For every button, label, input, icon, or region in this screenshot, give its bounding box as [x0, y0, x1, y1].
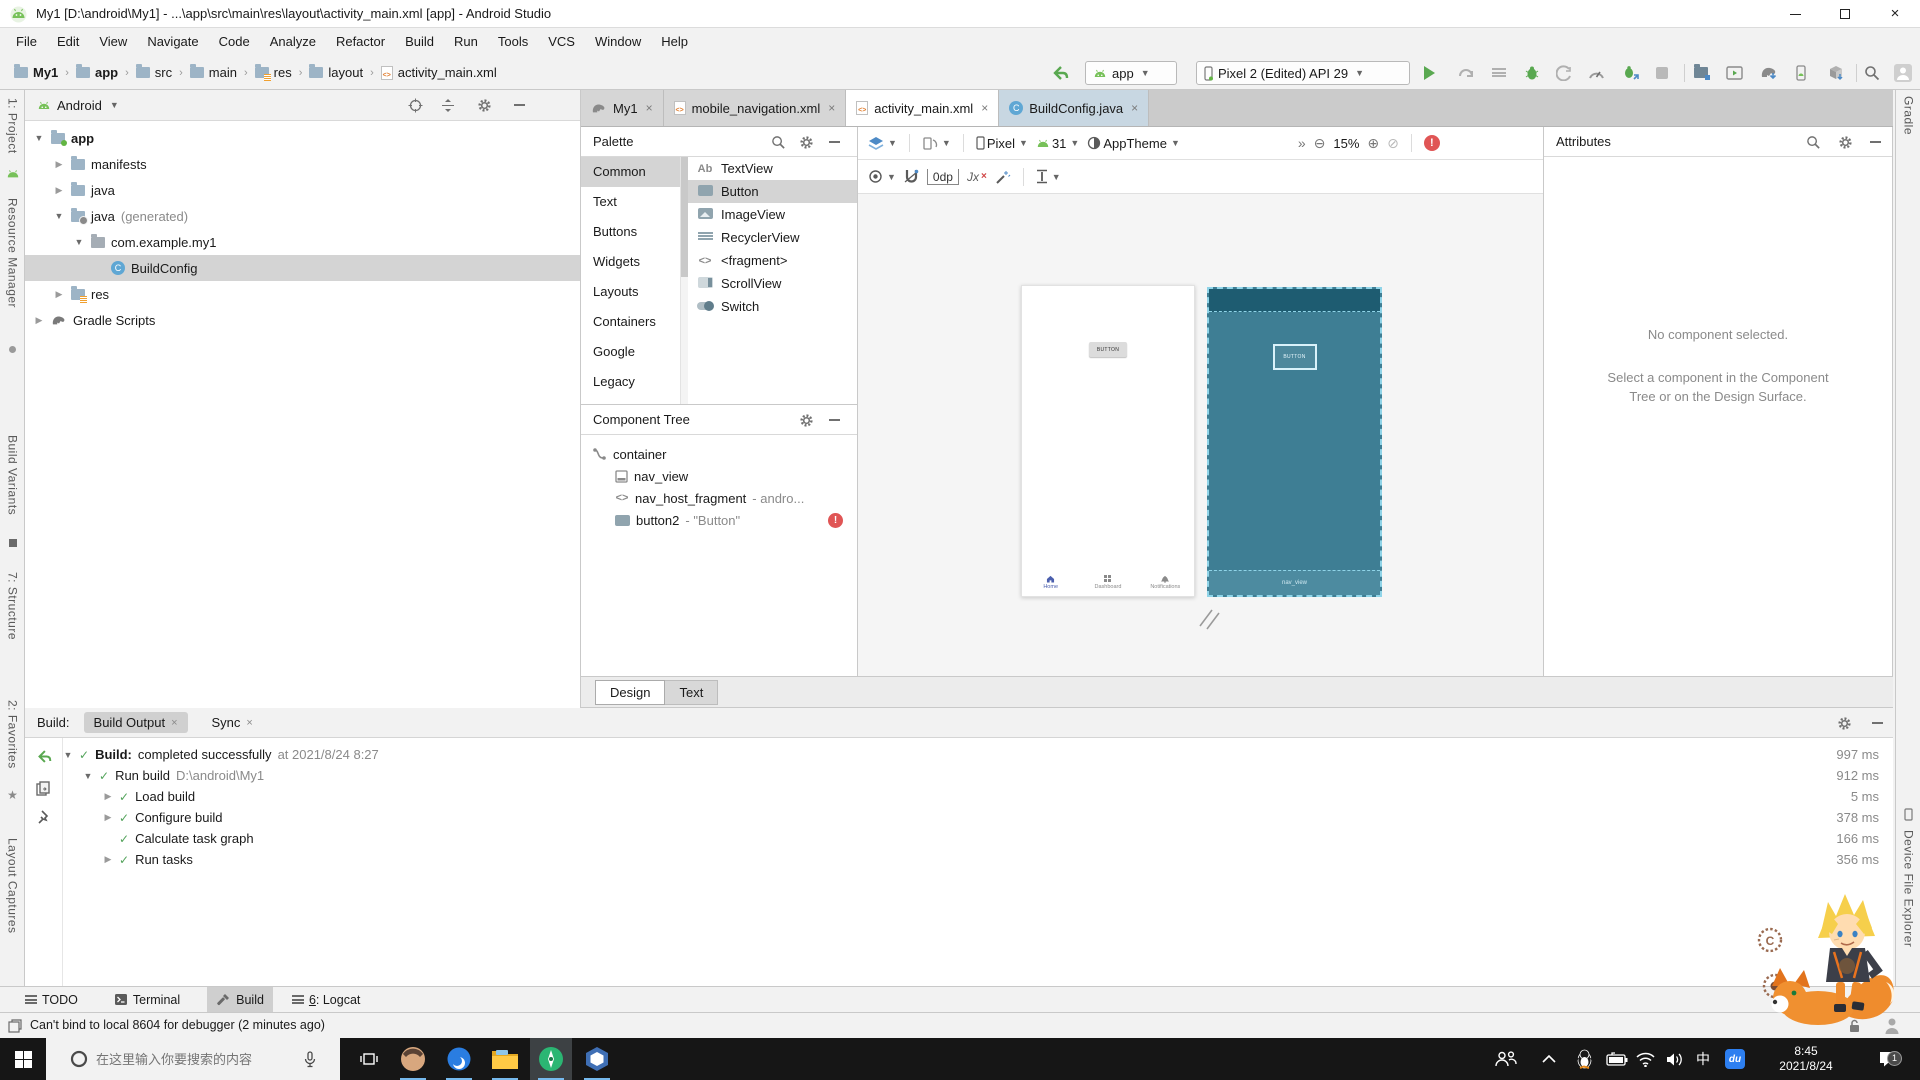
build-panel: Build: Build Output× Sync× ▼✓ Build:comp…	[25, 708, 1893, 986]
tool-icon[interactable]	[0, 538, 25, 548]
palette-category-common[interactable]: Common	[581, 157, 680, 187]
tab-sync[interactable]: Sync×	[202, 712, 263, 733]
switch-icon	[696, 301, 714, 313]
folder-icon	[76, 67, 90, 78]
palette-item-scrollview[interactable]: ScrollView	[688, 272, 857, 295]
theme-select[interactable]: AppTheme▼	[1087, 136, 1180, 151]
clock-date: 2021/8/24	[1779, 1059, 1832, 1074]
clock-time: 8:45	[1779, 1044, 1832, 1059]
tree-row-manifests[interactable]: ▶manifests	[25, 151, 580, 177]
bell-icon	[1161, 574, 1169, 583]
toolwin-todo[interactable]: TODO	[16, 987, 87, 1013]
blueprint-preview[interactable]: BUTTON nav_view	[1207, 287, 1382, 597]
design-canvas[interactable]: BUTTON Home Dashboard Notifications BUTT…	[858, 194, 1543, 676]
design-mode-select[interactable]: ▼	[868, 136, 897, 151]
export-icon[interactable]	[25, 765, 62, 796]
tab-design[interactable]: Design	[595, 680, 665, 705]
folder-icon	[309, 67, 323, 78]
tray-ime-indicator[interactable]: 中	[1690, 1038, 1716, 1080]
build-duration: 166 ms	[1836, 831, 1879, 846]
menu-view[interactable]: View	[89, 28, 137, 56]
phone-icon[interactable]	[1896, 808, 1920, 821]
res-folder-icon	[255, 67, 269, 78]
component-tree-header: Component Tree	[581, 405, 857, 435]
default-margin-field[interactable]: 0dp	[927, 169, 959, 185]
breadcrumb-project[interactable]: My1	[14, 65, 58, 80]
package-icon	[91, 237, 105, 248]
chevron-up-icon	[1542, 1055, 1556, 1063]
home-icon	[1046, 575, 1055, 583]
hexagon-app-icon	[585, 1046, 609, 1072]
success-check-icon: ✓	[119, 832, 129, 846]
task-view-button[interactable]	[348, 1038, 390, 1080]
project-panel: Android ▼ ▼app ▶manifests ▶java ▼java (g…	[25, 90, 581, 708]
theme-icon	[1087, 136, 1101, 150]
menu-run[interactable]: Run	[444, 28, 488, 56]
folder-icon	[71, 159, 85, 170]
tree-row-gradle-scripts[interactable]: ▶ Gradle Scripts	[25, 307, 580, 333]
window-layers-icon[interactable]	[8, 1019, 22, 1033]
tool-strip-layout-captures[interactable]: Layout Captures	[0, 838, 25, 934]
search-everywhere-icon[interactable]	[1864, 60, 1880, 85]
taskbar-search-box[interactable]	[46, 1038, 340, 1080]
zoom-fit-icon[interactable]: ⊘	[1387, 135, 1399, 152]
taskbar-app-avatar[interactable]	[392, 1038, 434, 1080]
palette-item-recyclerview[interactable]: RecyclerView	[688, 226, 857, 249]
tree-row-res[interactable]: ▶res	[25, 281, 580, 307]
gear-icon[interactable]	[799, 135, 814, 150]
generated-folder-icon	[71, 211, 85, 222]
hide-panel-icon[interactable]	[829, 141, 840, 143]
toolbar-overflow[interactable]: »	[1298, 135, 1306, 151]
toolwin-build[interactable]: Build	[207, 987, 273, 1013]
profiler-gauge-icon[interactable]	[1588, 60, 1605, 85]
success-check-icon: ✓	[119, 790, 129, 804]
build-duration: 912 ms	[1836, 768, 1879, 783]
gradle-sync-icon[interactable]	[1760, 60, 1778, 85]
rotate-device-icon	[922, 136, 938, 151]
people-icon	[1495, 1051, 1517, 1067]
error-badge[interactable]: !	[828, 513, 843, 528]
palette-category-containers[interactable]: Containers	[581, 307, 680, 337]
tool-strip-favorites[interactable]: 2: Favorites	[0, 700, 25, 769]
layout-file-icon	[674, 101, 686, 115]
close-icon[interactable]: ×	[646, 101, 653, 115]
back-arrow-icon[interactable]	[1050, 60, 1070, 85]
design-toolbar-row2: ▼ 0dp Jx× ▼	[858, 160, 1543, 194]
res-folder-icon	[71, 289, 85, 300]
tree-row-buildconfig[interactable]: CBuildConfig	[25, 255, 580, 281]
android-studio-icon	[538, 1046, 564, 1072]
tool-strip-project[interactable]: 1: Project	[0, 98, 25, 154]
sdk-manager-icon[interactable]	[1828, 60, 1844, 85]
api-level-select[interactable]: 31▼	[1036, 136, 1079, 151]
gear-icon[interactable]	[799, 413, 814, 428]
chevron-down-icon: ▼	[1052, 172, 1061, 182]
phone-icon	[976, 136, 985, 150]
errors-badge[interactable]: !	[1424, 135, 1440, 151]
show-hidden-icons-button[interactable]	[1534, 1038, 1564, 1080]
layout-file-icon	[381, 66, 393, 80]
build-panel-label: Build:	[37, 715, 70, 730]
folder-icon	[14, 67, 28, 78]
todo-list-icon	[25, 994, 37, 1006]
windows-taskbar: 中 du 8:452021/8/24 1	[0, 1038, 1920, 1080]
clear-constraints-icon[interactable]: Jx×	[967, 170, 987, 184]
menu-edit[interactable]: Edit	[47, 28, 89, 56]
button-icon	[696, 185, 714, 199]
attributes-empty-state: No component selected. Select a componen…	[1544, 327, 1892, 406]
bottom-nav-icon	[615, 470, 628, 483]
component-row-nav-host-fragment[interactable]: <> nav_host_fragment- andro...	[581, 487, 857, 509]
notification-badge: 1	[1887, 1051, 1902, 1066]
search-input[interactable]	[96, 1052, 296, 1067]
gradle-elephant-icon	[51, 314, 67, 327]
hide-panel-icon[interactable]	[1870, 141, 1881, 143]
tool-window-bar: TODO Terminal Build 6: Logcat	[0, 986, 1920, 1012]
tool-strip-resource-manager[interactable]: Resource Manager	[0, 198, 25, 308]
palette-item-imageview[interactable]: ImageView	[688, 203, 857, 226]
success-check-icon: ✓	[99, 769, 109, 783]
layout-file-icon	[856, 101, 868, 115]
editor-mode-strip: Design Text	[581, 676, 1893, 708]
chevron-down-icon: ▼	[1171, 138, 1180, 148]
breadcrumb-file[interactable]: activity_main.xml	[381, 65, 497, 80]
microphone-icon[interactable]	[304, 1051, 316, 1068]
palette-category-layouts[interactable]: Layouts	[581, 277, 680, 307]
constraint-layout-icon	[593, 448, 607, 460]
pin-icon[interactable]	[25, 796, 62, 824]
dashboard-icon	[1104, 575, 1112, 583]
tab-build-output[interactable]: Build Output×	[84, 712, 188, 733]
editor-tab-my1[interactable]: My1×	[581, 90, 664, 126]
gear-icon[interactable]	[1837, 716, 1852, 731]
close-button[interactable]: ×	[1870, 0, 1920, 28]
device-manager-icon[interactable]	[1694, 60, 1708, 85]
close-icon[interactable]: ×	[828, 101, 835, 115]
build-row-load-build[interactable]: ▶✓ Load build 5 ms	[63, 786, 1893, 807]
ide-status-bar: Can't bind to local 8604 for debugger (2…	[0, 1012, 1920, 1038]
apply-changes-icon[interactable]	[1456, 60, 1474, 85]
design-toolbar-row1: ▼ ▼ Pixel▼ 31▼ AppTheme▼ » ⊖ 15% ⊕ ⊘ !	[858, 127, 1543, 160]
folder-icon	[71, 185, 85, 196]
nav-dashboard[interactable]: Dashboard	[1079, 568, 1136, 596]
toolwin-terminal[interactable]: Terminal	[105, 987, 189, 1013]
hide-panel-icon[interactable]	[514, 104, 525, 106]
avd-manager-icon[interactable]	[1796, 60, 1806, 85]
build-panel-header: Build: Build Output× Sync×	[25, 708, 1893, 738]
android-studio-logo-icon	[10, 6, 27, 23]
breadcrumb-src[interactable]: src	[136, 65, 172, 80]
zoom-in-icon[interactable]: ⊕	[1367, 135, 1379, 152]
empty-state-title: No component selected.	[1544, 327, 1892, 342]
palette-item-button[interactable]: Button	[688, 180, 857, 203]
editor-tab-mobile-navigation[interactable]: mobile_navigation.xml×	[664, 90, 847, 126]
pack-align-select[interactable]: ▼	[1036, 169, 1061, 184]
windows-logo-icon	[15, 1051, 32, 1068]
tab-text[interactable]: Text	[665, 680, 718, 705]
success-check-icon: ✓	[79, 748, 89, 762]
empty-state-hint: Select a component in the Component Tree…	[1602, 368, 1834, 406]
folder-icon	[136, 67, 150, 78]
imageview-icon	[696, 208, 714, 222]
hide-panel-icon[interactable]	[829, 419, 840, 421]
textview-icon: Ab	[696, 163, 714, 175]
attributes-panel: Attributes No component selected. Select…	[1543, 127, 1893, 676]
chevron-down-icon: ▼	[1141, 68, 1150, 78]
apply-code-changes-icon[interactable]	[1492, 60, 1506, 85]
device-type-select[interactable]: Pixel▼	[976, 136, 1028, 151]
component-row-nav-view[interactable]: nav_view	[581, 465, 857, 487]
build-row-run-tasks[interactable]: ▶✓ Run tasks 356 ms	[63, 849, 1893, 870]
design-surface-panel: ▼ ▼ Pixel▼ 31▼ AppTheme▼ » ⊖ 15% ⊕ ⊘ !	[858, 127, 1543, 676]
people-button[interactable]	[1486, 1038, 1526, 1080]
bookmark-icon[interactable]	[0, 345, 25, 354]
tool-strip-gradle[interactable]: Gradle	[1896, 96, 1920, 135]
action-center-button[interactable]: 1	[1866, 1038, 1910, 1080]
palette-category-buttons[interactable]: Buttons	[581, 217, 680, 247]
menu-vcs[interactable]: VCS	[538, 28, 585, 56]
class-icon: C	[111, 261, 125, 275]
chevron-down-icon: ▼	[887, 172, 896, 182]
close-icon[interactable]: ×	[171, 717, 177, 729]
tray-baidu-ime-icon[interactable]: du	[1720, 1038, 1750, 1080]
breadcrumb-main[interactable]: main	[190, 65, 237, 80]
build-duration: 356 ms	[1836, 852, 1879, 867]
rerun-build-icon[interactable]	[25, 738, 62, 765]
menu-refactor[interactable]: Refactor	[326, 28, 395, 56]
infer-constraints-icon[interactable]	[995, 169, 1011, 185]
collapse-all-icon[interactable]	[441, 98, 455, 113]
breadcrumb-res[interactable]: res	[255, 65, 292, 80]
palette-scrollbar[interactable]	[681, 157, 688, 404]
main-toolbar: My1› app› src› main› res› layout› activi…	[0, 56, 1920, 90]
autoconnect-icon[interactable]	[904, 169, 919, 185]
menu-bar: File Edit View Navigate Code Analyze Ref…	[0, 28, 1920, 56]
status-message[interactable]: Can't bind to local 8604 for debugger (2…	[30, 1018, 325, 1032]
locate-icon[interactable]	[408, 98, 423, 113]
editor-tab-activity-main[interactable]: activity_main.xml×	[846, 90, 999, 126]
folder-icon	[190, 67, 204, 78]
blueprint-nav-view[interactable]: nav_view	[1209, 570, 1380, 595]
editor-tab-strip: My1× mobile_navigation.xml× activity_mai…	[581, 90, 1893, 127]
menu-code[interactable]: Code	[209, 28, 260, 56]
desktop: My1 [D:\android\My1] - ...\app\src\main\…	[0, 0, 1920, 1080]
close-icon[interactable]: ×	[1131, 101, 1138, 115]
taskbar-app-explorer[interactable]	[484, 1038, 526, 1080]
success-check-icon: ✓	[119, 853, 129, 867]
tray-volume-icon[interactable]	[1660, 1038, 1690, 1080]
menu-build[interactable]: Build	[395, 28, 444, 56]
layers-icon	[868, 136, 884, 151]
project-tree: ▼app ▶manifests ▶java ▼java (generated) …	[25, 121, 580, 333]
tool-strip-structure[interactable]: 7: Structure	[0, 572, 25, 640]
avatar[interactable]	[1894, 60, 1912, 85]
right-tool-window-strip: Gradle Device File Explorer	[1895, 90, 1920, 986]
device-select[interactable]: Pixel 2 (Edited) API 29▼	[1196, 61, 1410, 85]
wifi-icon	[1636, 1052, 1655, 1067]
hammer-icon	[216, 993, 231, 1007]
person-icon[interactable]	[1884, 1017, 1900, 1035]
palette-items: AbTextView Button ImageView RecyclerView…	[688, 157, 857, 318]
tray-qq-icon[interactable]	[1570, 1038, 1598, 1080]
browser-icon	[446, 1046, 472, 1072]
window-title-bar: My1 [D:\android\My1] - ...\app\src\main\…	[0, 0, 1920, 28]
palette-item-switch[interactable]: Switch	[688, 295, 857, 318]
scrollview-icon	[696, 277, 714, 291]
palette-category-google[interactable]: Google	[581, 337, 680, 367]
build-duration: 5 ms	[1851, 789, 1879, 804]
tree-row-java-generated[interactable]: ▼java (generated)	[25, 203, 580, 229]
palette-category-widgets[interactable]: Widgets	[581, 247, 680, 277]
palette-categories: Common Text Buttons Widgets Layouts Cont…	[581, 157, 681, 404]
fragment-icon: <>	[696, 255, 714, 267]
attach-debugger-icon[interactable]	[1622, 60, 1639, 85]
run-button[interactable]	[1424, 60, 1435, 85]
palette-item-textview[interactable]: AbTextView	[688, 157, 857, 180]
cortana-icon	[70, 1050, 88, 1068]
chevron-down-icon: ▼	[888, 138, 897, 148]
recyclerview-icon	[696, 231, 714, 244]
palette-category-text[interactable]: Text	[581, 187, 680, 217]
device-phone-icon	[1204, 66, 1213, 81]
breadcrumb-layout[interactable]: layout	[309, 65, 363, 80]
logcat-list-icon	[292, 994, 304, 1006]
preview-bottom-nav: Home Dashboard Notifications	[1022, 568, 1194, 596]
project-view-select[interactable]: Android	[57, 98, 102, 113]
success-check-icon: ✓	[119, 811, 129, 825]
nav-home[interactable]: Home	[1022, 568, 1079, 596]
zoom-level: 15%	[1333, 136, 1359, 151]
build-duration: 997 ms	[1836, 747, 1879, 762]
blueprint-toolbar-area	[1209, 289, 1380, 312]
terminal-icon	[114, 993, 128, 1006]
menu-tools[interactable]: Tools	[488, 28, 538, 56]
palette-panel: Palette Common Text Buttons Widgets Layo…	[581, 127, 858, 404]
close-icon[interactable]: ×	[246, 717, 252, 729]
breadcrumb: My1› app› src› main› res› layout› activi…	[14, 56, 497, 89]
chevron-down-icon: ▼	[1355, 68, 1364, 78]
build-row-run-build[interactable]: ▼✓ Run buildD:\android\My1 912 ms	[63, 765, 1893, 786]
component-row-container[interactable]: container	[581, 443, 857, 465]
editor-tab-buildconfig[interactable]: C BuildConfig.java×	[999, 90, 1149, 126]
button-icon	[615, 515, 630, 526]
hide-panel-icon[interactable]	[1872, 722, 1883, 724]
class-icon: C	[1009, 101, 1023, 115]
gradle-elephant-icon	[591, 102, 607, 115]
taskbar-app-browser[interactable]	[438, 1038, 480, 1080]
zoom-out-icon[interactable]: ⊖	[1314, 135, 1326, 152]
folder-yellow-icon	[491, 1048, 519, 1070]
build-row-calculate-task-graph[interactable]: ✓ Calculate task graph 166 ms	[63, 828, 1893, 849]
menu-analyze[interactable]: Analyze	[260, 28, 326, 56]
build-panel-toolbar	[25, 738, 63, 986]
palette-item-fragment[interactable]: <><fragment>	[688, 249, 857, 272]
preview-button[interactable]: BUTTON	[1089, 342, 1127, 357]
toolwin-logcat[interactable]: 6: Logcat	[283, 987, 369, 1013]
taskbar-clock[interactable]: 8:452021/8/24	[1756, 1038, 1856, 1080]
tray-battery-icon[interactable]	[1600, 1038, 1632, 1080]
chevron-down-icon: ▼	[942, 138, 951, 148]
android-head-icon	[1093, 69, 1107, 78]
fragment-icon: <>	[615, 492, 629, 504]
task-view-icon	[360, 1051, 378, 1067]
user-photo-icon	[400, 1046, 426, 1072]
attributes-header: Attributes	[1544, 127, 1892, 157]
profile-icon[interactable]	[1556, 60, 1572, 85]
stop-button[interactable]	[1656, 60, 1668, 85]
left-tool-window-strip: 1: Project Resource Manager Build Varian…	[0, 90, 25, 986]
breadcrumb-app[interactable]: app	[76, 65, 118, 80]
project-panel-header: Android ▼	[25, 90, 580, 121]
search-icon[interactable]	[771, 135, 786, 150]
build-duration: 378 ms	[1836, 810, 1879, 825]
view-options-icon[interactable]: ▼	[868, 169, 896, 184]
tree-row-java[interactable]: ▶java	[25, 177, 580, 203]
run-configuration-select[interactable]: app▼	[1085, 61, 1177, 85]
palette-category-legacy[interactable]: Legacy	[581, 367, 680, 397]
taskbar-app-hexagon[interactable]	[576, 1038, 618, 1080]
blueprint-button[interactable]: BUTTON	[1273, 344, 1317, 370]
design-view-preview[interactable]: BUTTON Home Dashboard Notifications	[1021, 285, 1195, 597]
resource-manager-android-icon[interactable]	[0, 166, 25, 180]
android-head-icon	[1036, 139, 1050, 148]
menu-help[interactable]: Help	[651, 28, 698, 56]
palette-header: Palette	[581, 127, 857, 157]
build-output-tree: ▼✓ Build:completed successfullyat 2021/8…	[63, 744, 1893, 870]
tool-strip-build-variants[interactable]: Build Variants	[0, 435, 25, 515]
chevron-down-icon: ▼	[1070, 138, 1079, 148]
chevron-down-icon: ▼	[110, 100, 119, 110]
lock-icon[interactable]	[1848, 1019, 1861, 1033]
build-row-configure-build[interactable]: ▶✓ Configure build 378 ms	[63, 807, 1893, 828]
nav-notifications[interactable]: Notifications	[1137, 568, 1194, 596]
gear-icon[interactable]	[477, 98, 492, 113]
menu-file[interactable]: File	[6, 28, 47, 56]
layout-inspector-icon[interactable]	[1726, 60, 1743, 85]
tool-strip-device-file-explorer[interactable]: Device File Explorer	[1896, 830, 1920, 947]
build-row-root[interactable]: ▼✓ Build:completed successfullyat 2021/8…	[63, 744, 1893, 765]
speaker-icon	[1666, 1052, 1684, 1067]
debug-button[interactable]	[1524, 60, 1540, 85]
minimize-button[interactable]	[1770, 0, 1820, 28]
tree-row-package[interactable]: ▼com.example.my1	[25, 229, 580, 255]
menu-navigate[interactable]: Navigate	[137, 28, 208, 56]
component-row-button2[interactable]: button2- "Button" !	[581, 509, 857, 531]
maximize-button[interactable]	[1820, 0, 1870, 28]
window-title: My1 [D:\android\My1] - ...\app\src\main\…	[36, 0, 551, 28]
tree-row-app[interactable]: ▼app	[25, 125, 580, 151]
app-folder-icon	[51, 133, 65, 144]
menu-window[interactable]: Window	[585, 28, 651, 56]
android-head-icon	[37, 101, 51, 110]
battery-icon	[1604, 1052, 1628, 1066]
taskbar-app-android-studio[interactable]	[530, 1038, 572, 1080]
start-button[interactable]	[0, 1038, 46, 1080]
orientation-select[interactable]: ▼	[922, 136, 951, 151]
tray-wifi-icon[interactable]	[1630, 1038, 1660, 1080]
close-icon[interactable]: ×	[981, 101, 988, 115]
star-icon[interactable]: ★	[0, 788, 25, 802]
search-icon[interactable]	[1806, 135, 1821, 150]
component-tree-panel: Component Tree container nav_view <> nav…	[581, 404, 858, 676]
gear-icon[interactable]	[1838, 135, 1853, 150]
resize-handle-icon[interactable]	[1198, 606, 1220, 630]
chevron-down-icon: ▼	[1019, 138, 1028, 148]
